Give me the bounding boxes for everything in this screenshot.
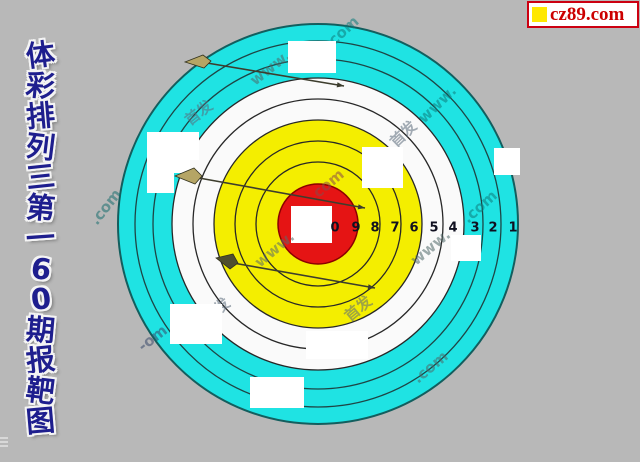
ring-number-4: 4: [448, 221, 457, 236]
shot-marker: [362, 147, 403, 188]
ring-number-8: 8: [370, 221, 379, 236]
shot-marker: [170, 304, 222, 344]
ring-number-0: 0: [330, 221, 339, 236]
shot-marker: [147, 132, 199, 160]
ring-number-9: 9: [351, 221, 360, 236]
shot-marker: [250, 377, 304, 408]
shot-marker: [171, 156, 190, 173]
shot-marker: [288, 41, 336, 73]
shot-marker: [147, 157, 174, 193]
ring-number-2: 2: [488, 221, 497, 236]
shot-marker: [451, 235, 481, 261]
ring-number-5: 5: [429, 221, 438, 236]
ring-number-3: 3: [470, 221, 479, 236]
shot-marker: [494, 148, 520, 175]
ring-number-1: 1: [508, 221, 517, 236]
scan-artifact: [0, 437, 8, 447]
ring-number-7: 7: [390, 221, 399, 236]
shot-marker: [306, 331, 368, 359]
bullseye-square: [291, 206, 332, 243]
target-diagram: www.首发.comwww.首发com.comwww..comwww.首发首发-…: [0, 0, 640, 462]
ring-number-6: 6: [409, 221, 418, 236]
